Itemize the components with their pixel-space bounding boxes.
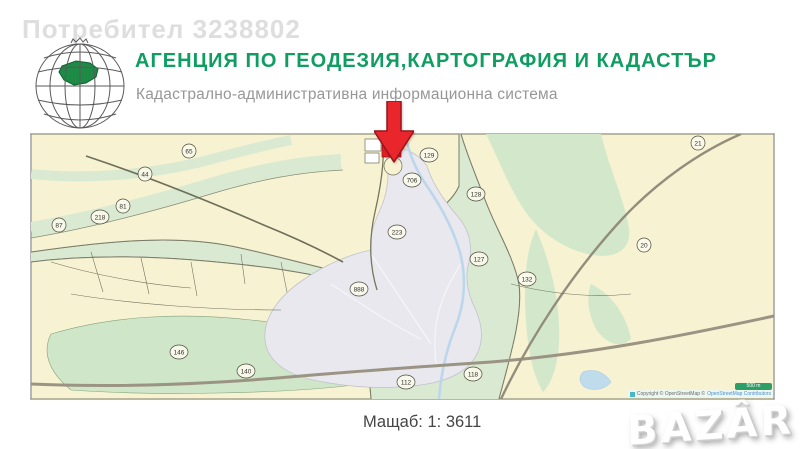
map-parcel-label: 218 xyxy=(91,210,109,224)
copyright-contributors-link[interactable]: OpenStreetMap Contributors xyxy=(707,391,771,397)
map-parcel-label: 127 xyxy=(470,252,488,266)
copyright-text: Copyright © OpenStreetMap © xyxy=(637,391,705,397)
map-parcel-label: 140 xyxy=(237,364,255,378)
page: Потребител 3238802 АГЕНЦИЯ ПО ГЕОДЕЗИЯ,К… xyxy=(0,0,800,449)
svg-text:223: 223 xyxy=(392,229,403,236)
svg-text:132: 132 xyxy=(522,276,533,283)
map-scale-label: Мащаб: 1: 3611 xyxy=(363,413,481,432)
svg-text:21: 21 xyxy=(694,140,702,147)
map-parcel-label: 44 xyxy=(138,167,152,181)
svg-text:140: 140 xyxy=(241,368,252,375)
brand-watermark-text: BAZÂR xyxy=(627,397,795,449)
map-artwork: 6544812188712970612822312713288821201461… xyxy=(31,134,774,399)
map-copyright: Copyright © OpenStreetMap © OpenStreetMa… xyxy=(628,390,773,398)
map-parcel-label: 21 xyxy=(691,136,705,150)
svg-text:44: 44 xyxy=(141,171,149,178)
map-parcel-label: 112 xyxy=(397,375,415,389)
map-parcel-label: 223 xyxy=(388,225,406,239)
svg-text:706: 706 xyxy=(407,177,418,184)
svg-text:112: 112 xyxy=(401,379,412,386)
svg-text:218: 218 xyxy=(95,214,106,221)
map-parcel-label: 706 xyxy=(403,173,421,187)
map-scalebar: 500 m xyxy=(735,383,772,390)
svg-text:81: 81 xyxy=(119,203,127,210)
svg-text:118: 118 xyxy=(468,371,479,378)
svg-text:888: 888 xyxy=(354,286,365,293)
osm-icon xyxy=(630,392,635,397)
svg-text:128: 128 xyxy=(471,191,482,198)
svg-text:65: 65 xyxy=(185,148,193,155)
map-parcel-label: 128 xyxy=(467,187,485,201)
page-subtitle: Кадастрално-административна информационн… xyxy=(136,86,558,104)
map-parcel-label: 65 xyxy=(182,144,196,158)
map-parcel-label: 146 xyxy=(170,345,188,359)
map-parcel-label: 81 xyxy=(116,199,130,213)
cadastral-map-view[interactable]: 6544812188712970612822312713288821201461… xyxy=(30,133,775,400)
svg-text:146: 146 xyxy=(174,349,185,356)
location-marker-icon xyxy=(374,101,414,163)
svg-text:20: 20 xyxy=(640,242,648,249)
map-parcel-label: 118 xyxy=(464,367,482,381)
map-parcel-label: 888 xyxy=(350,282,368,296)
svg-text:87: 87 xyxy=(55,222,63,229)
svg-text:127: 127 xyxy=(474,256,485,263)
map-parcel-label: 20 xyxy=(637,238,651,252)
map-parcel-label: 129 xyxy=(420,148,438,162)
agency-globe-logo-icon xyxy=(32,36,128,130)
svg-text:129: 129 xyxy=(424,152,435,159)
map-parcel-label: 132 xyxy=(518,272,536,286)
page-title: АГЕНЦИЯ ПО ГЕОДЕЗИЯ,КАРТОГРАФИЯ И КАДАСТ… xyxy=(135,50,717,73)
map-parcel-label: 87 xyxy=(52,218,66,232)
